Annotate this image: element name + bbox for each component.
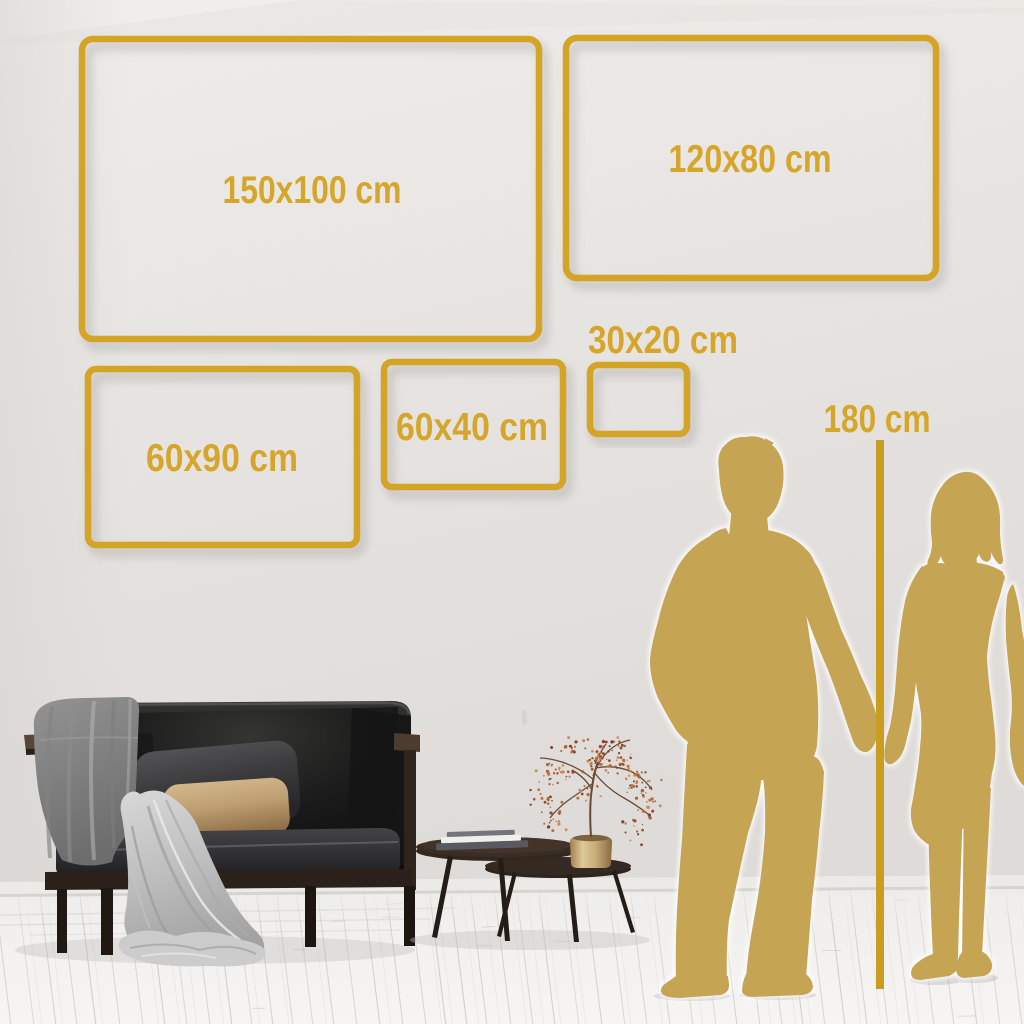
svg-text:180 cm: 180 cm [824,398,931,441]
svg-text:30x20 cm: 30x20 cm [588,319,738,362]
svg-text:60x40 cm: 60x40 cm [396,406,548,449]
svg-text:120x80 cm: 120x80 cm [669,138,832,181]
svg-text:60x90 cm: 60x90 cm [146,437,298,480]
svg-text:150x100 cm: 150x100 cm [223,169,402,212]
